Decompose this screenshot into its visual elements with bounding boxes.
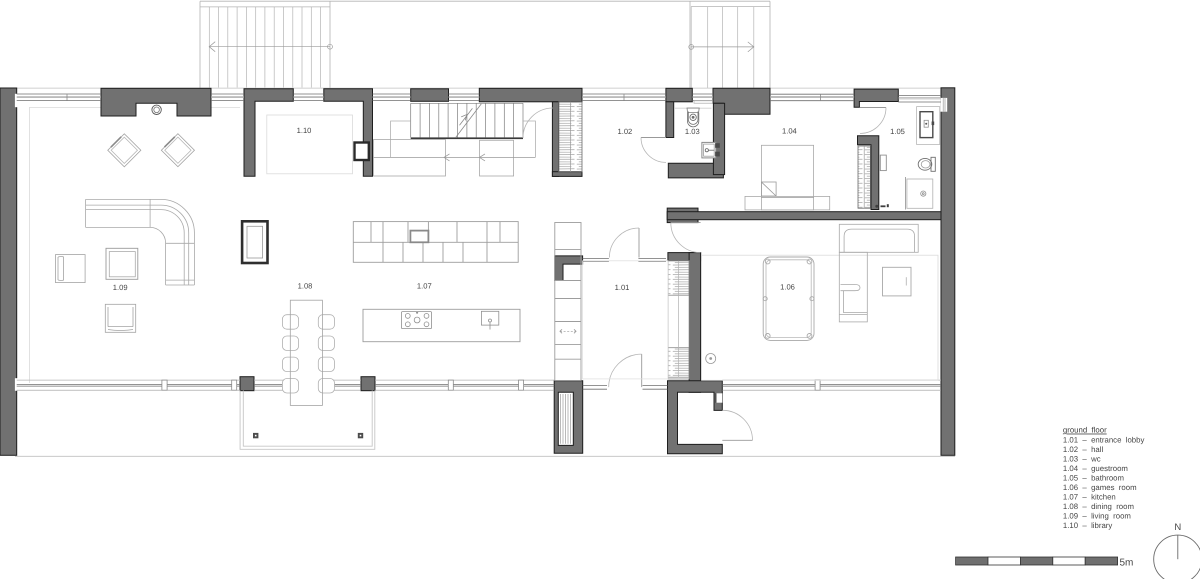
svg-text:1.04 – guestroom: 1.04 – guestroom bbox=[1063, 464, 1128, 473]
svg-text:1.04: 1.04 bbox=[782, 127, 797, 136]
svg-text:1.08: 1.08 bbox=[298, 282, 313, 291]
svg-text:1.09 – living room: 1.09 – living room bbox=[1063, 512, 1131, 521]
svg-text:1.10: 1.10 bbox=[297, 126, 312, 135]
svg-text:ground floor: ground floor bbox=[1063, 426, 1107, 435]
svg-text:1.02: 1.02 bbox=[618, 127, 633, 136]
svg-text:1.02 – hall: 1.02 – hall bbox=[1063, 445, 1104, 454]
svg-text:1.10 – library: 1.10 – library bbox=[1063, 521, 1113, 530]
svg-text:1.09: 1.09 bbox=[113, 283, 128, 292]
svg-text:5m: 5m bbox=[1120, 558, 1134, 569]
svg-text:1.01: 1.01 bbox=[615, 283, 630, 292]
svg-text:1.07: 1.07 bbox=[417, 282, 432, 291]
svg-text:1.06: 1.06 bbox=[780, 283, 795, 292]
svg-text:1.05: 1.05 bbox=[890, 127, 905, 136]
svg-text:1.05 – bathroom: 1.05 – bathroom bbox=[1063, 474, 1124, 483]
svg-text:1.06 – games room: 1.06 – games room bbox=[1063, 483, 1137, 492]
svg-text:1.01 – entrance lobby: 1.01 – entrance lobby bbox=[1063, 436, 1145, 445]
svg-text:1.03: 1.03 bbox=[685, 127, 700, 136]
svg-text:N: N bbox=[1174, 522, 1181, 533]
svg-text:1.07 – kitchen: 1.07 – kitchen bbox=[1063, 493, 1116, 502]
svg-text:1.03 – wc: 1.03 – wc bbox=[1063, 455, 1101, 464]
svg-text:1.08 – dining room: 1.08 – dining room bbox=[1063, 502, 1134, 511]
